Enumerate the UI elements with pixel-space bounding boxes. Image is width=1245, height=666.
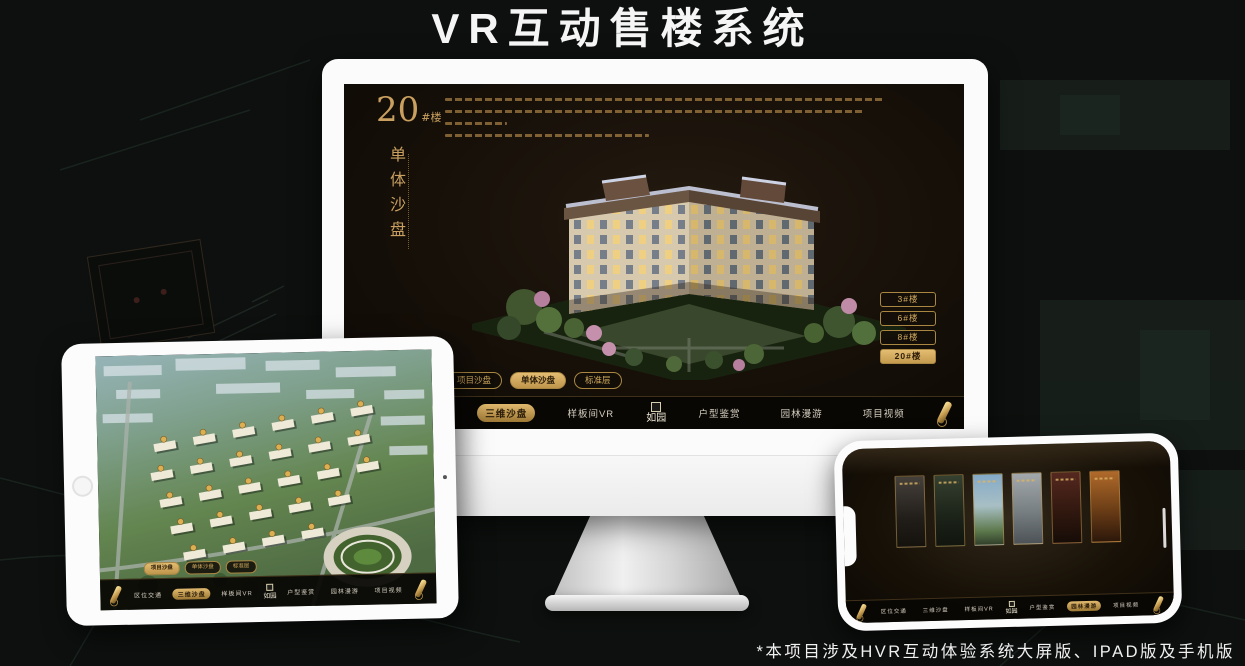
scene-card-warm-interior[interactable] — [1089, 470, 1121, 543]
scene-card-autumn[interactable] — [1050, 471, 1082, 544]
tablet-camera — [443, 475, 447, 479]
scene-card-interior[interactable] — [894, 475, 926, 548]
scene-card-caption — [1094, 477, 1114, 480]
page-title: VR互动售楼系统 — [0, 0, 1245, 58]
scene-card-caption — [1016, 479, 1036, 482]
tablet-device: 项目沙盘 单体沙盘 标准层 区位交通 三维沙盘 样板间VR 如园 户型鉴赏 园林… — [61, 336, 459, 626]
nav-item-garden-roam[interactable]: 园林漫游 — [1067, 601, 1101, 612]
scene-gallery — [843, 469, 1173, 550]
scene-card-caption — [938, 481, 958, 484]
nav-item-project-video[interactable]: 项目视频 — [1109, 599, 1143, 610]
building-number-suffix: #楼 — [421, 111, 441, 124]
subtitle-decor-line — [408, 154, 409, 249]
building-number: 20 — [376, 90, 419, 130]
nav-item-3d-sandbox[interactable]: 三维沙盘 — [919, 604, 953, 615]
scene-card-caption — [899, 482, 919, 485]
scene-card-exterior-day[interactable] — [972, 473, 1004, 546]
tablet-home-button — [72, 475, 93, 496]
nav-item-garden-roam[interactable]: 园林漫游 — [773, 404, 831, 422]
nav-item-garden-roam[interactable]: 园林漫游 — [326, 584, 364, 596]
nav-item-location[interactable]: 区位交通 — [877, 606, 911, 617]
nav-item-project-video[interactable]: 项目视频 — [855, 404, 913, 422]
text-line — [445, 110, 865, 113]
scene-card-building[interactable] — [1011, 472, 1043, 545]
floor-button-3[interactable]: 3#楼 — [880, 292, 936, 307]
scroll-icon[interactable] — [937, 400, 952, 427]
brand-logo-text: 如园 — [1006, 609, 1018, 615]
nav-item-showroom-vr[interactable]: 样板间VR — [960, 603, 997, 614]
nav-item-project-video[interactable]: 项目视频 — [369, 583, 407, 595]
seal-icon — [651, 402, 661, 412]
monitor-stand-base — [545, 595, 749, 611]
nav-item-unit-plans[interactable]: 户型鉴赏 — [690, 404, 748, 422]
floor-button-6[interactable]: 6#楼 — [880, 311, 936, 326]
nav-item-3d-sandbox[interactable]: 三维沙盘 — [173, 588, 211, 600]
phone-notch — [842, 506, 857, 566]
scroll-icon[interactable] — [414, 578, 426, 600]
sandbox-tabs: 项目沙盘 单体沙盘 标准层 — [446, 372, 622, 389]
tab-project-sandbox[interactable]: 项目沙盘 — [144, 562, 180, 576]
seal-icon — [266, 584, 273, 591]
nav-item-unit-plans[interactable]: 户型鉴赏 — [282, 585, 320, 597]
brand-logo: 如园 — [263, 584, 276, 600]
scene-card-caption — [1055, 478, 1075, 481]
scroll-icon[interactable] — [856, 602, 867, 621]
footnote: *本项目涉及HVR互动体验系统大屏版、IPAD版及手机版 — [756, 638, 1235, 662]
floor-buttons: 3#楼 6#楼 8#楼 20#楼 — [880, 292, 936, 364]
nav-item-unit-plans[interactable]: 户型鉴赏 — [1025, 602, 1059, 613]
nav-item-showroom-vr[interactable]: 样板间VR — [559, 404, 622, 422]
text-line — [445, 134, 649, 137]
building-model-image — [454, 142, 924, 380]
brand-logo-text: 如园 — [263, 593, 276, 600]
tab-standard-floor[interactable]: 标准层 — [226, 560, 257, 574]
text-line — [445, 122, 507, 125]
tablet-navbar: 区位交通 三维沙盘 样板间VR 如园 户型鉴赏 园林漫游 项目视频 — [100, 572, 437, 610]
page: VR互动售楼系统 20#楼 单体沙盘 — [0, 0, 1245, 666]
text-line — [445, 98, 883, 101]
building-heading: 20#楼 — [376, 90, 441, 130]
scene-card-caption — [977, 480, 997, 483]
floor-button-8[interactable]: 8#楼 — [880, 330, 936, 345]
phone-screen: 区位交通 三维沙盘 样板间VR 如园 户型鉴赏 园林漫游 项目视频 — [842, 441, 1174, 624]
tab-single-sandbox[interactable]: 单体沙盘 — [510, 372, 566, 389]
scroll-icon[interactable] — [1153, 595, 1164, 614]
scroll-icon[interactable] — [110, 584, 122, 606]
nav-item-3d-sandbox[interactable]: 三维沙盘 — [477, 404, 535, 422]
brand-logo: 如园 — [646, 402, 666, 424]
wall-plaque — [87, 240, 214, 351]
scene-card-courtyard[interactable] — [933, 474, 965, 547]
tab-standard-floor[interactable]: 标准层 — [574, 372, 622, 389]
tablet-tabs: 项目沙盘 单体沙盘 标准层 — [144, 560, 257, 575]
phone-navbar: 区位交通 三维沙盘 样板间VR 如园 户型鉴赏 园林漫游 项目视频 — [846, 592, 1174, 624]
building-subtitle-vertical: 单体沙盘 — [384, 146, 408, 296]
nav-item-location[interactable]: 区位交通 — [129, 588, 167, 600]
tablet-screen: 项目沙盘 单体沙盘 标准层 区位交通 三维沙盘 样板间VR 如园 户型鉴赏 园林… — [95, 349, 436, 610]
nav-item-showroom-vr[interactable]: 样板间VR — [216, 587, 258, 599]
tab-single-sandbox[interactable]: 单体沙盘 — [185, 561, 221, 575]
phone-device: 区位交通 三维沙盘 样板间VR 如园 户型鉴赏 园林漫游 项目视频 — [834, 433, 1183, 632]
floor-button-20[interactable]: 20#楼 — [880, 349, 936, 364]
tab-project-sandbox[interactable]: 项目沙盘 — [446, 372, 502, 389]
brand-logo: 如园 — [1005, 601, 1017, 615]
brand-logo-text: 如园 — [646, 414, 666, 424]
seal-icon — [1008, 601, 1014, 607]
description-text-lines — [445, 98, 883, 146]
